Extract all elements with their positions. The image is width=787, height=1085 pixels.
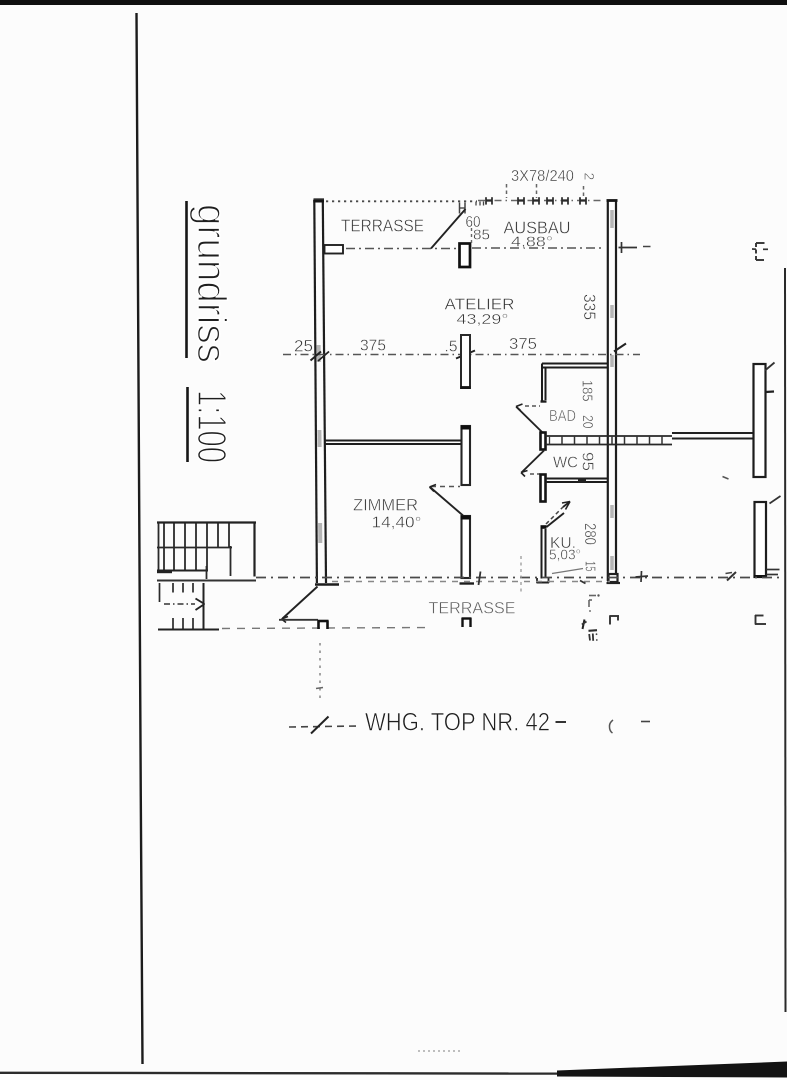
- svg-text:1:100: 1:100: [189, 390, 235, 463]
- svg-text:375: 375: [360, 338, 386, 355]
- svg-text:185: 185: [579, 380, 596, 402]
- svg-text:25: 25: [294, 337, 313, 356]
- svg-text:15: 15: [582, 561, 599, 572]
- svg-text:43,29°: 43,29°: [457, 311, 509, 328]
- svg-text:14,40°: 14,40°: [372, 515, 422, 532]
- svg-text:335: 335: [580, 294, 598, 320]
- svg-text:375: 375: [509, 336, 537, 353]
- svg-text:grundriss: grundriss: [189, 204, 235, 363]
- svg-text:BAD: BAD: [549, 408, 576, 425]
- svg-text:ZIMMER: ZIMMER: [353, 497, 418, 515]
- svg-text:TERRASSE: TERRASSE: [341, 216, 424, 236]
- svg-text:4,88°: 4,88°: [511, 234, 553, 251]
- svg-text:.5: .5: [445, 339, 458, 356]
- svg-text:TERRASSE: TERRASSE: [429, 599, 516, 618]
- svg-text:20: 20: [579, 415, 596, 429]
- svg-text:85: 85: [473, 228, 490, 244]
- svg-text:WC: WC: [553, 455, 578, 472]
- svg-text:280: 280: [581, 523, 598, 545]
- svg-text:5,03°: 5,03°: [549, 548, 581, 564]
- svg-text:2: 2: [582, 173, 598, 181]
- svg-text:3X78/240: 3X78/240: [511, 168, 574, 185]
- svg-text:95: 95: [579, 452, 596, 471]
- svg-text:WHG. TOP NR. 42: WHG. TOP NR. 42: [365, 709, 550, 737]
